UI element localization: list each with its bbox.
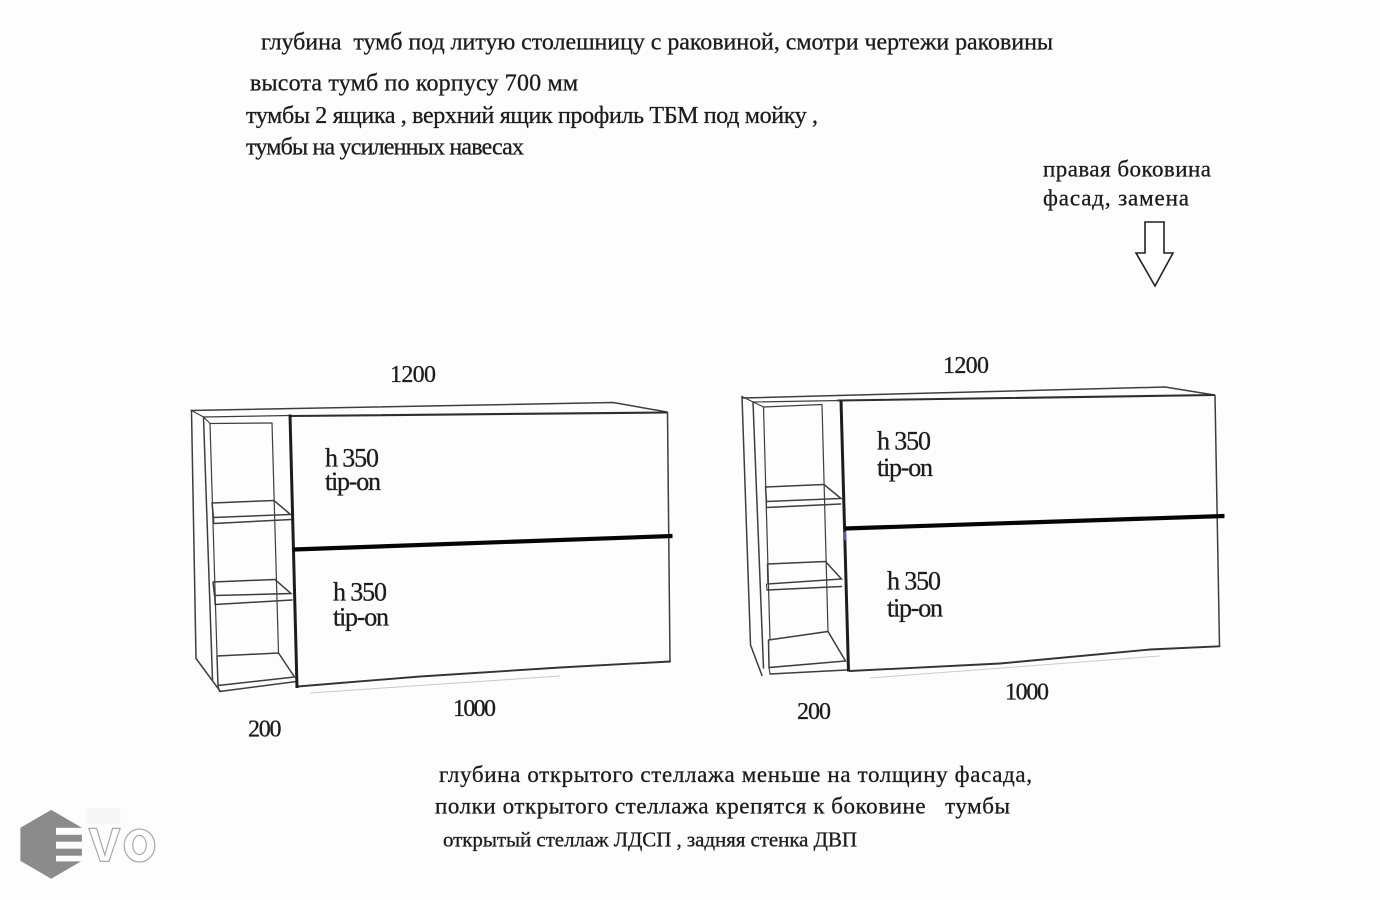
svg-text:tip-on: tip-on bbox=[887, 594, 943, 623]
svg-text:200: 200 bbox=[248, 717, 282, 743]
svg-text:глубина открытого стеллажа мен: глубина открытого стеллажа меньше на тол… bbox=[439, 762, 1032, 787]
svg-text:тумбы на усиленных навесах: тумбы на усиленных навесах bbox=[246, 135, 524, 161]
svg-text:открытый стеллаж ЛДСП , задняя: открытый стеллаж ЛДСП , задняя стенка ДВ… bbox=[443, 828, 857, 852]
svg-text:1200: 1200 bbox=[390, 362, 436, 388]
svg-text:1200: 1200 bbox=[943, 353, 989, 379]
svg-text:tip-on: tip-on bbox=[333, 603, 389, 632]
svg-text:tip-on: tip-on bbox=[325, 467, 381, 496]
svg-text:h 350: h 350 bbox=[887, 567, 941, 596]
svg-text:1000: 1000 bbox=[1005, 680, 1049, 706]
svg-text:тумбы 2 ящика , верхний ящик п: тумбы 2 ящика , верхний ящик профиль ТБМ… bbox=[246, 103, 818, 129]
svg-text:h 350: h 350 bbox=[877, 427, 931, 456]
svg-text:1000: 1000 bbox=[453, 696, 496, 722]
svg-text:полки открытого стеллажа крепя: полки открытого стеллажа крепятся к боко… bbox=[435, 794, 1010, 819]
svg-text:высота тумб по корпусу 700 мм: высота тумб по корпусу 700 мм bbox=[250, 71, 578, 97]
svg-text:фасад, замена: фасад, замена bbox=[1043, 186, 1189, 211]
svg-text:правая боковина: правая боковина bbox=[1043, 157, 1211, 182]
svg-text:глубина тумб под литую столеш: глубина тумб под литую столешницу с рако… bbox=[261, 30, 1053, 56]
svg-text:200: 200 bbox=[797, 699, 831, 725]
svg-text:tip-on: tip-on bbox=[877, 453, 933, 482]
